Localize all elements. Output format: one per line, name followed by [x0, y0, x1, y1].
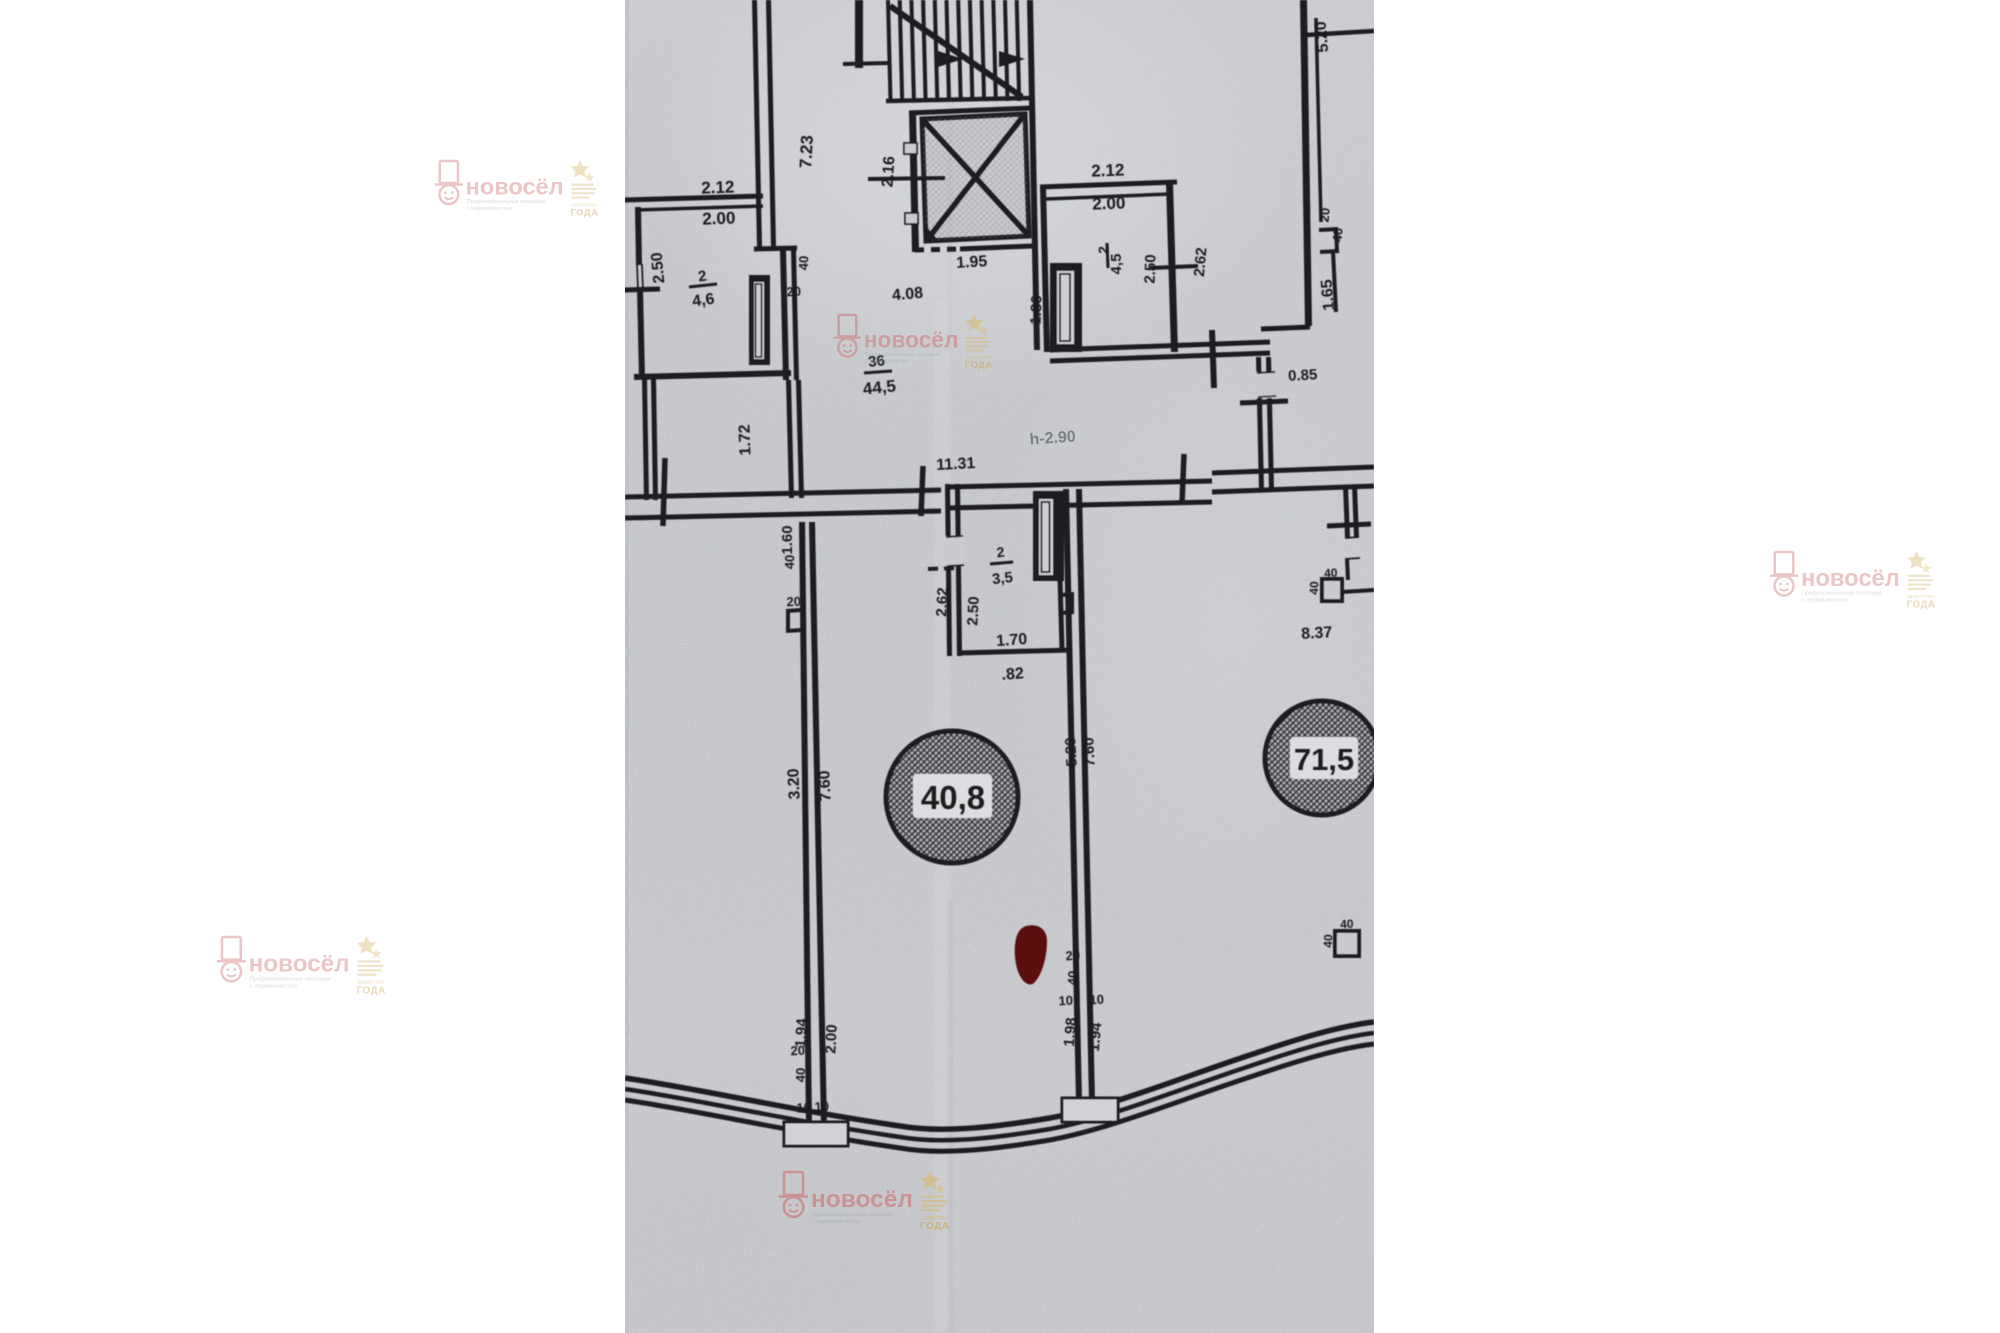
svg-text:1.94: 1.94	[1086, 1021, 1106, 1052]
svg-text:2.62: 2.62	[1191, 247, 1210, 278]
svg-text:4,5: 4,5	[1108, 254, 1125, 275]
svg-text:40: 40	[1330, 227, 1346, 243]
svg-text:0.85: 0.85	[1288, 366, 1318, 385]
svg-text:40: 40	[782, 554, 797, 569]
svg-text:1.98: 1.98	[1061, 1017, 1080, 1048]
svg-text:10: 10	[814, 1099, 829, 1115]
svg-text:4,6: 4,6	[691, 291, 715, 311]
svg-text:20: 20	[1317, 207, 1333, 223]
svg-text:7.23: 7.23	[796, 135, 817, 169]
svg-text:7.60: 7.60	[1080, 737, 1099, 767]
svg-text:20: 20	[1065, 948, 1080, 964]
svg-text:7.60: 7.60	[816, 770, 835, 802]
svg-text:1.60: 1.60	[779, 525, 796, 554]
svg-text:2.50: 2.50	[1142, 254, 1160, 284]
svg-text:2.16: 2.16	[879, 155, 898, 187]
svg-text:2.12: 2.12	[701, 177, 735, 197]
svg-text:1.70: 1.70	[996, 631, 1028, 650]
svg-text:5.20: 5.20	[1312, 21, 1332, 54]
svg-text:1.95: 1.95	[956, 253, 988, 272]
svg-text:2.50: 2.50	[964, 596, 983, 626]
svg-text:2.62: 2.62	[933, 587, 952, 617]
svg-text:1.94: 1.94	[792, 1017, 811, 1048]
svg-text:20: 20	[786, 594, 801, 610]
svg-text:40: 40	[793, 1068, 808, 1083]
svg-text:8.37: 8.37	[1301, 624, 1333, 643]
svg-text:10: 10	[1089, 992, 1104, 1008]
svg-text:10: 10	[1058, 993, 1073, 1009]
svg-text:3,5: 3,5	[991, 569, 1014, 588]
svg-text:2.12: 2.12	[1091, 160, 1125, 180]
svg-text:2.50: 2.50	[649, 252, 669, 285]
svg-text:2.00: 2.00	[1092, 193, 1126, 213]
svg-text:40: 40	[796, 255, 811, 270]
svg-text:40: 40	[1065, 970, 1080, 985]
svg-text:44,5: 44,5	[862, 376, 897, 398]
svg-text:1.72: 1.72	[736, 424, 754, 456]
svg-text:.82: .82	[1001, 665, 1024, 684]
svg-text:2.00: 2.00	[822, 1024, 841, 1054]
svg-text:40,8: 40,8	[921, 779, 985, 816]
svg-text:11.31: 11.31	[936, 455, 976, 474]
svg-text:h-2.90: h-2.90	[1029, 428, 1076, 448]
svg-text:5.20: 5.20	[1062, 737, 1081, 767]
svg-text:2.00: 2.00	[702, 208, 736, 228]
svg-text:3.20: 3.20	[785, 768, 804, 800]
svg-text:40: 40	[1307, 581, 1321, 595]
svg-text:4.08: 4.08	[891, 285, 924, 305]
svg-text:20: 20	[786, 284, 801, 300]
svg-text:40: 40	[1340, 917, 1354, 932]
svg-text:10: 10	[796, 1100, 811, 1116]
svg-text:71,5: 71,5	[1294, 742, 1354, 777]
svg-text:2: 2	[1095, 246, 1111, 254]
svg-text:40: 40	[1324, 566, 1338, 581]
svg-text:1.86: 1.86	[1028, 295, 1046, 325]
svg-text:1.65: 1.65	[1318, 279, 1338, 312]
svg-text:40: 40	[1321, 934, 1335, 948]
